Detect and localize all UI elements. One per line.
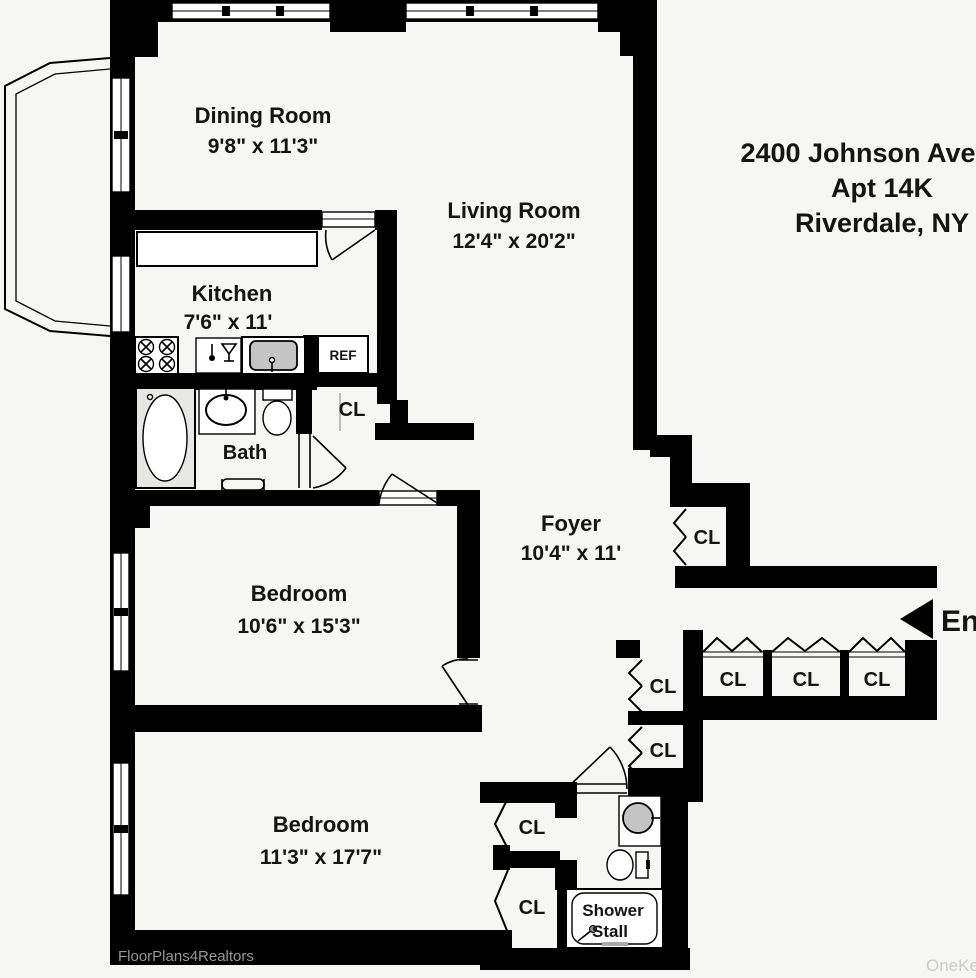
terrace-inner-line [16,69,110,326]
window-bedroom1-left [113,553,129,671]
closet-label-bedroom2-1: CL [519,817,546,839]
wall-segment [661,768,688,970]
shower-stall: Shower Stall [566,889,663,948]
address-line3: Riverdale, NY [795,208,969,238]
living-room-name: Living Room [447,198,580,223]
wall-segment [675,566,937,588]
entry-marker: Entry [900,599,976,639]
address-line1: 2400 Johnson Avenue [740,138,976,168]
stove-icon [135,337,178,374]
kitchen-sink-icon [242,337,305,374]
wall-segment [628,711,683,725]
wall-segment [683,696,937,720]
wall-segment [493,935,510,955]
kitchen-dims: 7'6" x 11' [184,311,273,334]
wall-segment [555,860,577,890]
bath-door [299,434,346,488]
wall-segment [110,210,322,230]
closet-label-kitchen: CL [339,399,366,421]
bath2-fixtures: Shower Stall [566,796,663,948]
wall-segment [480,948,690,970]
bedroom1-name: Bedroom [251,581,348,606]
entry-label: Entry [941,605,976,638]
kitchen-counter [137,232,317,266]
wall-segment [317,373,397,387]
closet-label-row-1: CL [720,669,747,691]
towel-bar-icon [222,479,264,490]
floor-plan-page: REF [0,0,976,978]
wall-segment [375,423,474,440]
vanity-sink-icon [619,796,661,846]
address-line2: Apt 14K [831,173,934,203]
shower-drain [602,942,628,946]
closet-label-hall-1: CL [650,676,677,698]
terrace-outer-line [5,58,110,336]
dining-room-dims: 9'8" x 11'3" [208,135,319,158]
wall-segment [616,640,640,658]
terrace-outline [5,58,110,336]
bath-sink-icon [199,389,255,434]
wall-segment [130,492,150,528]
bedroom1-side-door [442,659,478,705]
kitchen-name: Kitchen [192,281,273,306]
window-bedroom2-left [113,763,129,895]
shower-label-line2: Stall [592,922,628,941]
wall-segment [493,782,510,796]
wall-segment [628,768,664,795]
closet-label-hall-2: CL [650,740,677,762]
watermark-floorplans4realtors: FloorPlans4Realtors [118,948,254,965]
foyer-dims: 10'4" x 11' [521,542,622,565]
watermark-onekey: OneKey [926,956,976,975]
pass-through-window [322,212,375,227]
bedroom2-dims: 11'3" x 17'7" [260,846,382,869]
wall-segment [330,0,406,32]
floor-plan-canvas: REF [0,0,976,978]
bedroom1-door [379,474,437,505]
foyer-name: Foyer [541,511,601,536]
closet-labels: CL CL CL CL CL CL CL CL CL [339,399,891,919]
window-top-right [406,3,598,19]
pass-through-door [326,230,375,260]
toilet-icon [263,389,292,435]
wall-segment [110,705,482,732]
refrigerator-box: REF [318,336,368,373]
bedroom1-dims: 10'6" x 15'3" [237,615,360,638]
wall-segment [296,387,312,434]
window-top-left [172,3,330,19]
bathtub-icon [136,388,195,488]
wall-segment [480,782,564,803]
dishwasher-icon [196,338,241,373]
address-block: 2400 Johnson Avenue Apt 14K Riverdale, N… [740,138,976,238]
closet-label-foyer: CL [694,527,721,549]
shower-label-line1: Shower [582,901,644,920]
wall-segment [633,0,657,450]
toilet2-icon [607,850,650,880]
closet-label-row-2: CL [793,669,820,691]
wall-segment [110,490,379,506]
window-kitchen-left [112,256,130,332]
closet-label-bedroom2-2: CL [519,897,546,919]
wall-segment [457,500,480,658]
dining-room-name: Dining Room [195,103,332,128]
entry-closet-row-doors [703,638,905,657]
closet-label-row-3: CL [864,669,891,691]
window-dining-left [112,78,130,192]
living-room-dims: 12'4" x 20'2" [452,230,575,253]
bath-name: Bath [223,442,267,464]
entry-arrow-icon [900,599,933,639]
bedroom2-name: Bedroom [273,812,370,837]
refrigerator-label: REF [330,348,357,363]
foyer-closet-bifold-door [674,509,686,565]
wall-segment [555,782,577,818]
